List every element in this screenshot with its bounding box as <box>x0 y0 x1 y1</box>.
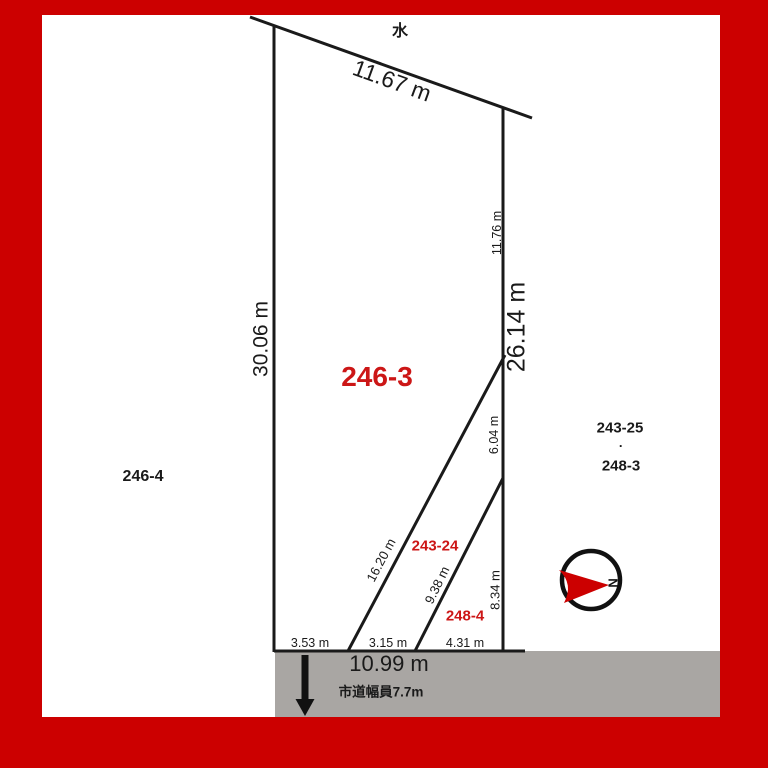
compass-icon: N <box>559 551 621 609</box>
left-edge-dimension: 30.06 m <box>251 301 272 377</box>
parcel-west-label: 246-4 <box>123 469 164 485</box>
plot-diagram-canvas: N 水 11.67 m 30.06 m 26.14 m 11.76 m 6.04… <box>42 15 720 717</box>
parcel-east-upper-label: 243-25 <box>597 421 644 436</box>
inner-diagonal-short-line <box>415 478 503 651</box>
parcel-inner-lower-label: 248-4 <box>446 609 484 624</box>
right-segment-middle-dimension: 6.04 m <box>488 416 501 454</box>
parcel-east-lower-label: 248-3 <box>602 459 640 474</box>
road-frontage-total-dimension: 10.99 m <box>349 653 429 675</box>
parcel-east-separator: · <box>619 440 623 453</box>
bottom-segment-middle-dimension: 3.15 m <box>369 637 407 650</box>
water-boundary-label: 水 <box>392 24 408 40</box>
right-edge-total-dimension: 26.14 m <box>505 282 530 372</box>
parcel-main-label: 246-3 <box>341 363 413 391</box>
right-segment-top-dimension: 11.76 m <box>491 211 504 255</box>
bottom-segment-left-dimension: 3.53 m <box>291 637 329 650</box>
road-width-label: 市道幅員7.7m <box>339 685 424 699</box>
right-segment-bottom-dimension: 8.34 m <box>489 570 502 610</box>
plot-map-page: { "colors": { "frame_red": "#cc0000", "p… <box>0 0 768 768</box>
bottom-segment-right-dimension: 4.31 m <box>446 637 484 650</box>
parcel-inner-upper-label: 243-24 <box>412 539 459 554</box>
compass-north-label: N <box>606 578 621 587</box>
